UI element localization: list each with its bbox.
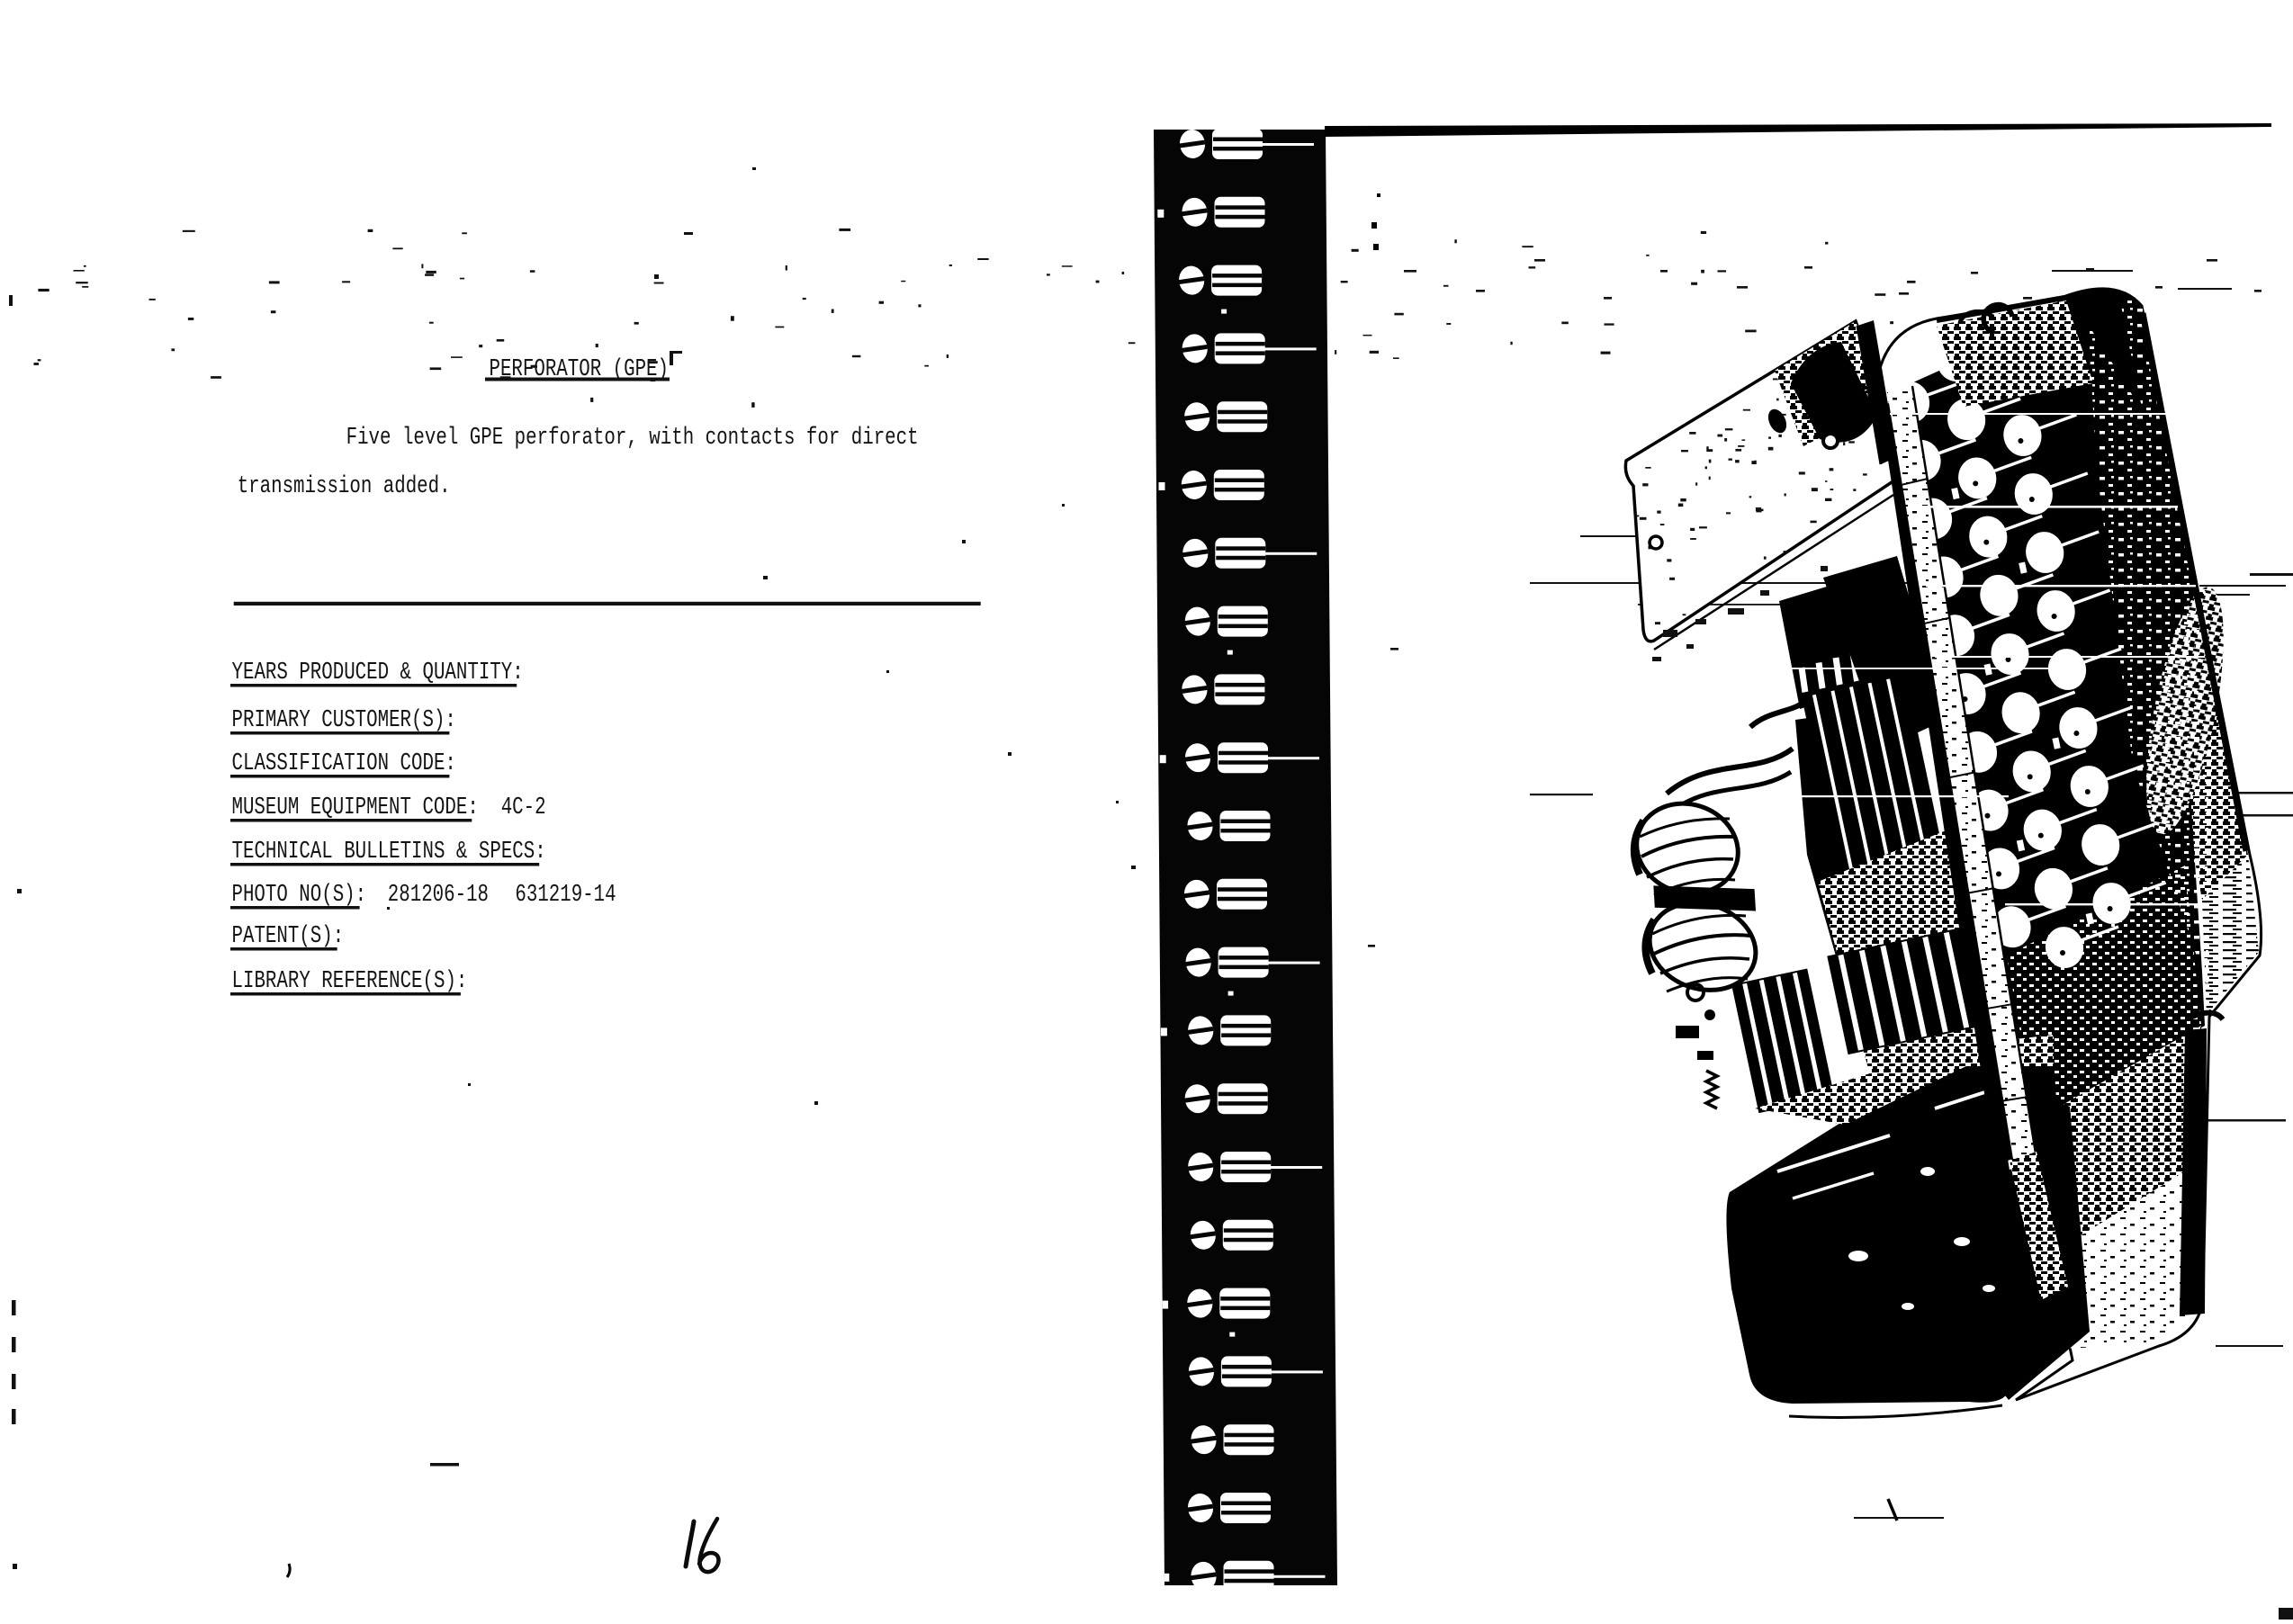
svg-text:CLASSIFICATION CODE:: CLASSIFICATION CODE:: [232, 750, 456, 777]
svg-text:PATENT(S):: PATENT(S):: [232, 923, 345, 950]
svg-text:transmission added.: transmission added.: [238, 473, 451, 500]
svg-text:YEARS PRODUCED & QUANTITY:: YEARS PRODUCED & QUANTITY:: [232, 659, 524, 686]
svg-text:4C-2: 4C-2: [501, 794, 546, 821]
svg-text:Five level GPE perforator, wit: Five level GPE perforator, with contacts…: [346, 425, 919, 452]
svg-text:TECHNICAL BULLETINS & SPECS:: TECHNICAL BULLETINS & SPECS:: [232, 839, 546, 866]
svg-text:631219-14: 631219-14: [515, 882, 616, 909]
svg-text:PRIMARY CUSTOMER(S):: PRIMARY CUSTOMER(S):: [232, 707, 456, 734]
svg-text:281206-18: 281206-18: [388, 882, 489, 909]
svg-text:LIBRARY REFERENCE(S):: LIBRARY REFERENCE(S):: [232, 968, 468, 995]
svg-text:PHOTO NO(S):: PHOTO NO(S):: [232, 882, 367, 909]
svg-text:MUSEUM EQUIPMENT CODE:: MUSEUM EQUIPMENT CODE:: [232, 794, 479, 821]
